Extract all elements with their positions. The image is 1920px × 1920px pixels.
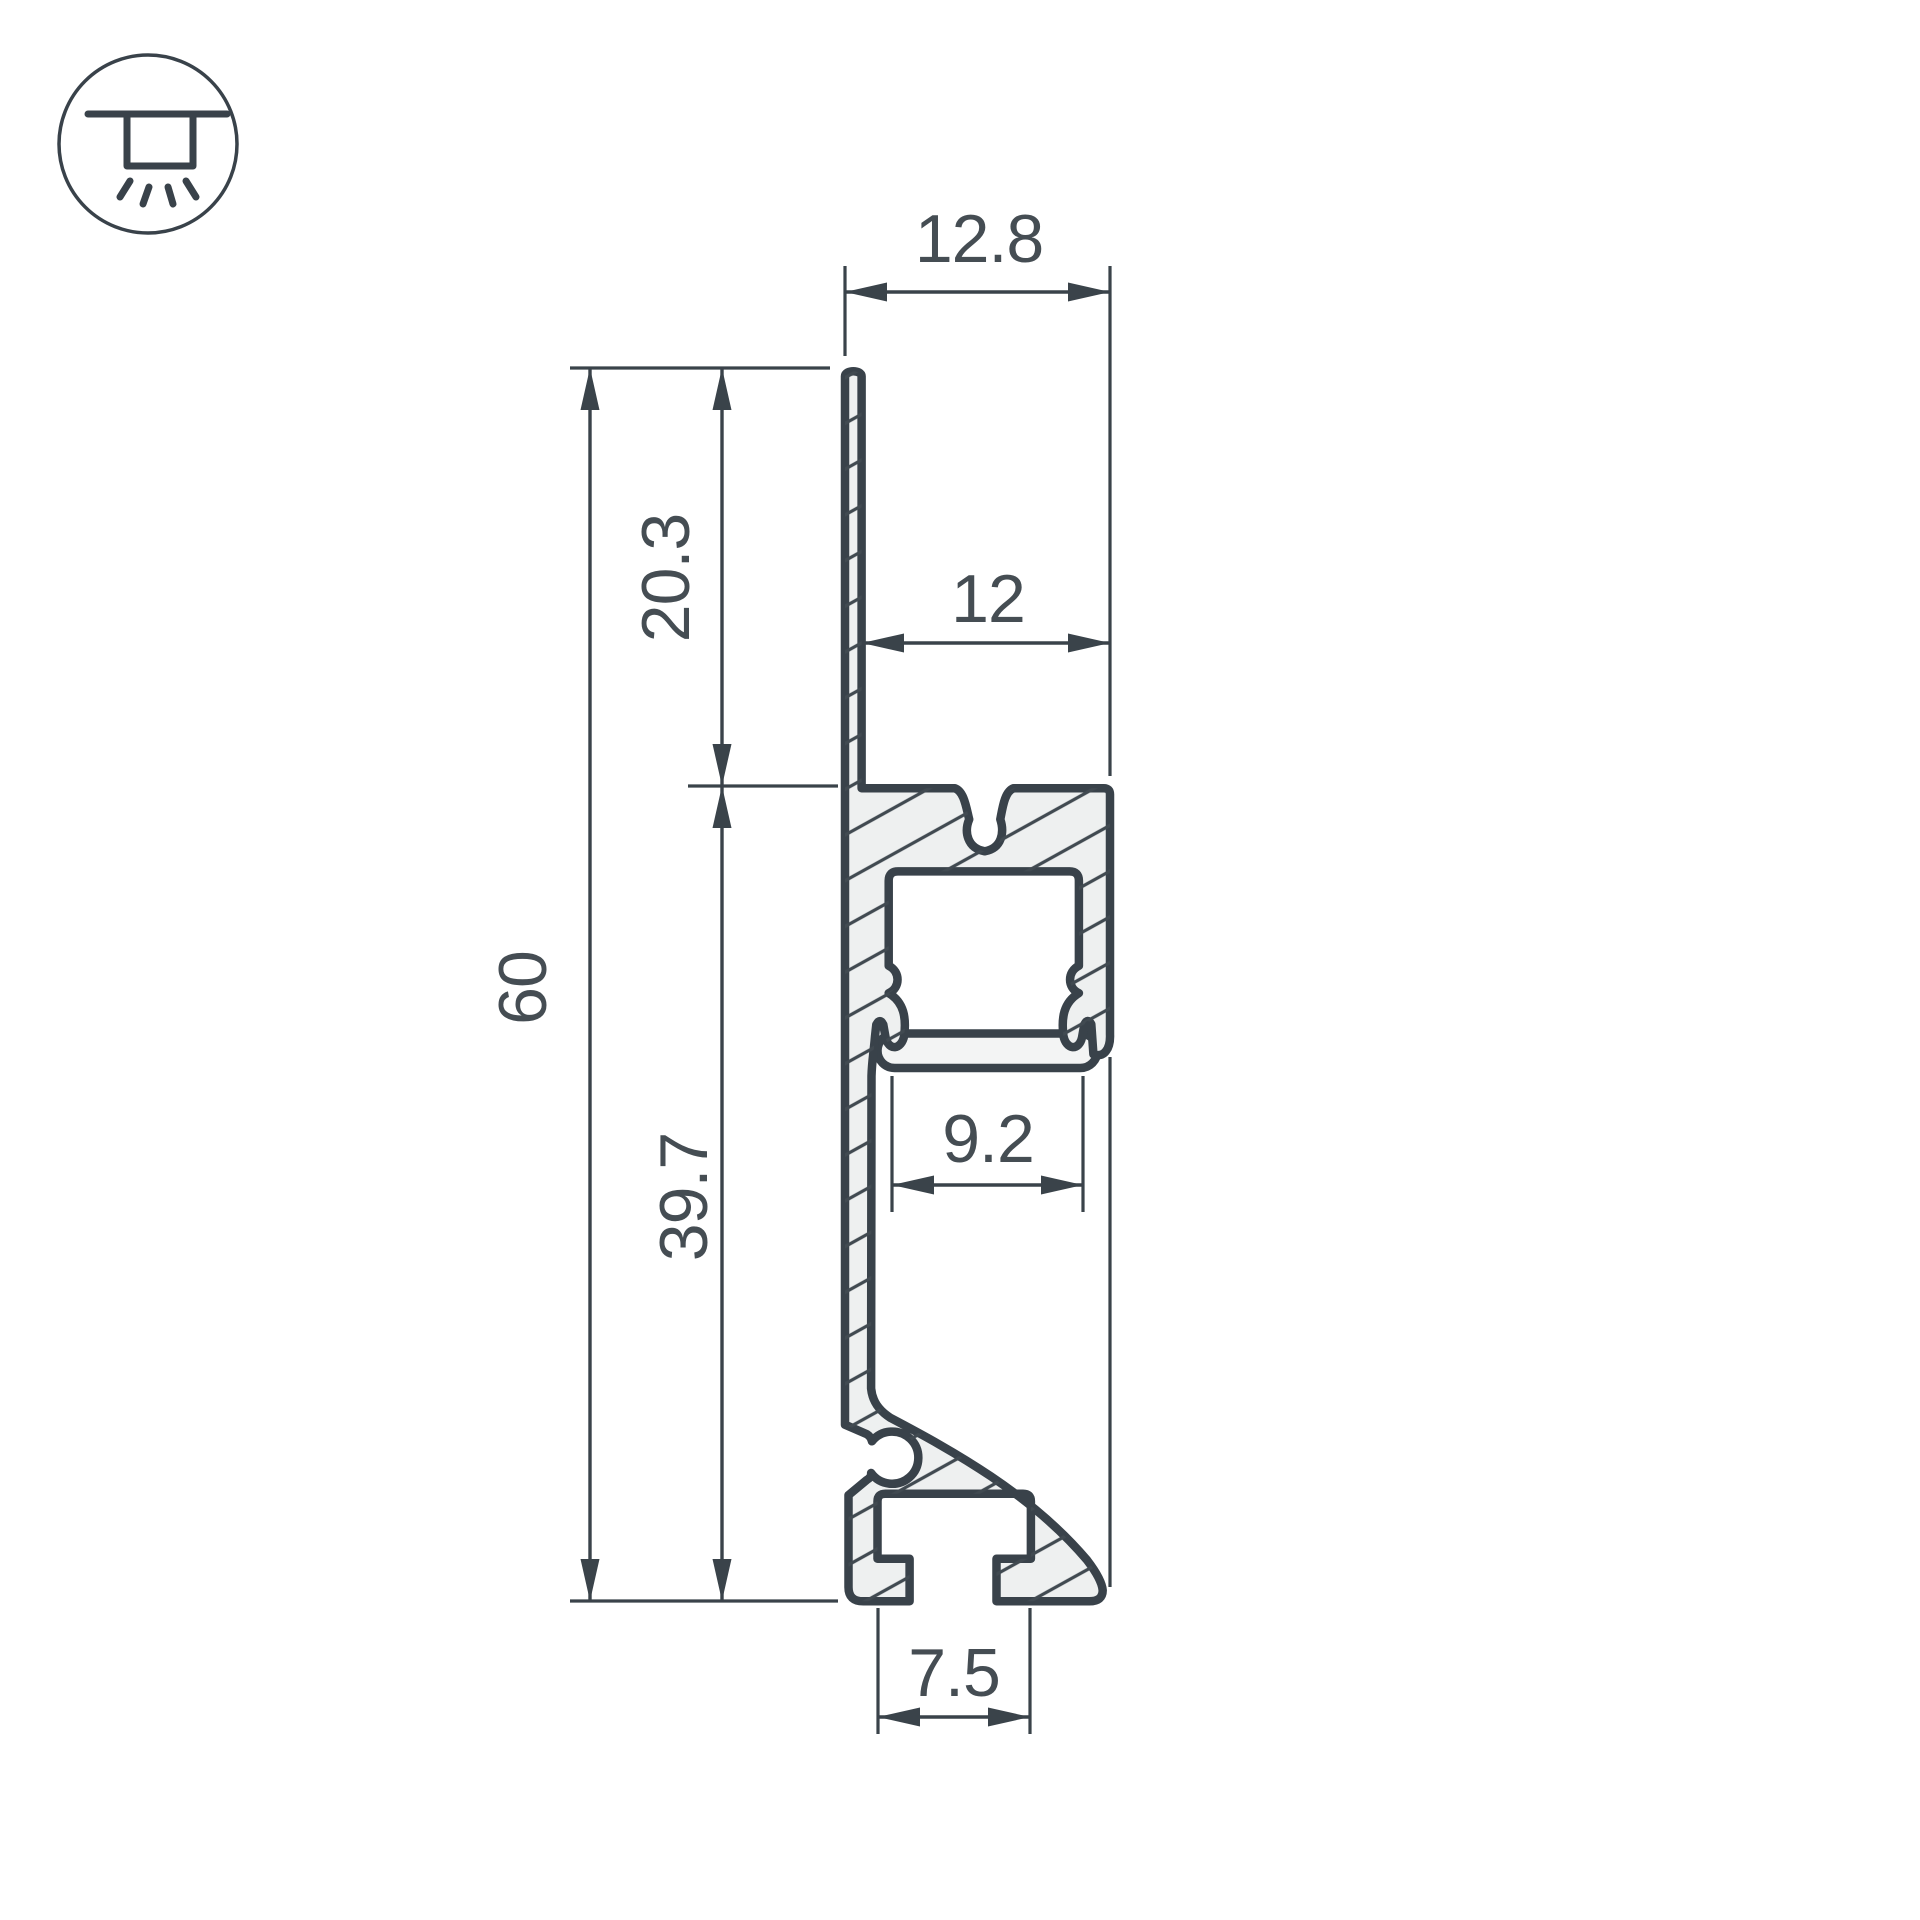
arrowhead-right — [1068, 634, 1110, 653]
arrowhead-top — [581, 368, 600, 410]
arrowhead-bottom — [581, 1559, 600, 1601]
icon-circle — [59, 55, 237, 233]
dim-label-channel-top-width: 12 — [951, 561, 1025, 637]
dim-overall-height: 60 — [485, 368, 600, 1601]
arrowhead-top — [713, 786, 732, 828]
arrowhead-top — [713, 368, 732, 410]
profile-technical-drawing: 12.8 12 60 20.3 39.7 9.2 7 — [0, 0, 1920, 1920]
arrowhead-bottom — [713, 744, 732, 786]
arrowhead-left — [862, 634, 904, 653]
dim-channel-top-width: 12 — [862, 561, 1110, 653]
dim-label-overall-width: 12.8 — [915, 201, 1043, 277]
arrowhead-left — [845, 283, 887, 302]
dim-foot-slot-width: 7.5 — [878, 1635, 1030, 1727]
recessed-downlight-icon — [59, 55, 237, 233]
drawing-canvas: 12.8 12 60 20.3 39.7 9.2 7 — [0, 0, 1920, 1920]
dim-label-upper-height: 20.3 — [628, 514, 704, 642]
dim-label-channel-inner-width: 9.2 — [942, 1101, 1034, 1177]
arrowhead-bottom — [713, 1559, 732, 1601]
icon-fixture-box — [127, 114, 193, 166]
dim-channel-inner-width: 9.2 — [892, 1101, 1083, 1195]
icon-light-rays — [120, 181, 196, 204]
arrowhead-right — [1041, 1176, 1083, 1195]
profile-body — [845, 371, 1110, 1601]
arrowhead-left — [892, 1176, 934, 1195]
dim-label-overall-height: 60 — [485, 951, 561, 1025]
dim-label-foot-slot-width: 7.5 — [908, 1635, 1000, 1711]
dim-lower-height: 39.7 — [646, 786, 732, 1601]
arrowhead-right — [1068, 283, 1110, 302]
dim-overall-width: 12.8 — [845, 201, 1110, 302]
dim-label-lower-height: 39.7 — [646, 1133, 722, 1261]
dim-upper-height: 20.3 — [628, 368, 732, 786]
